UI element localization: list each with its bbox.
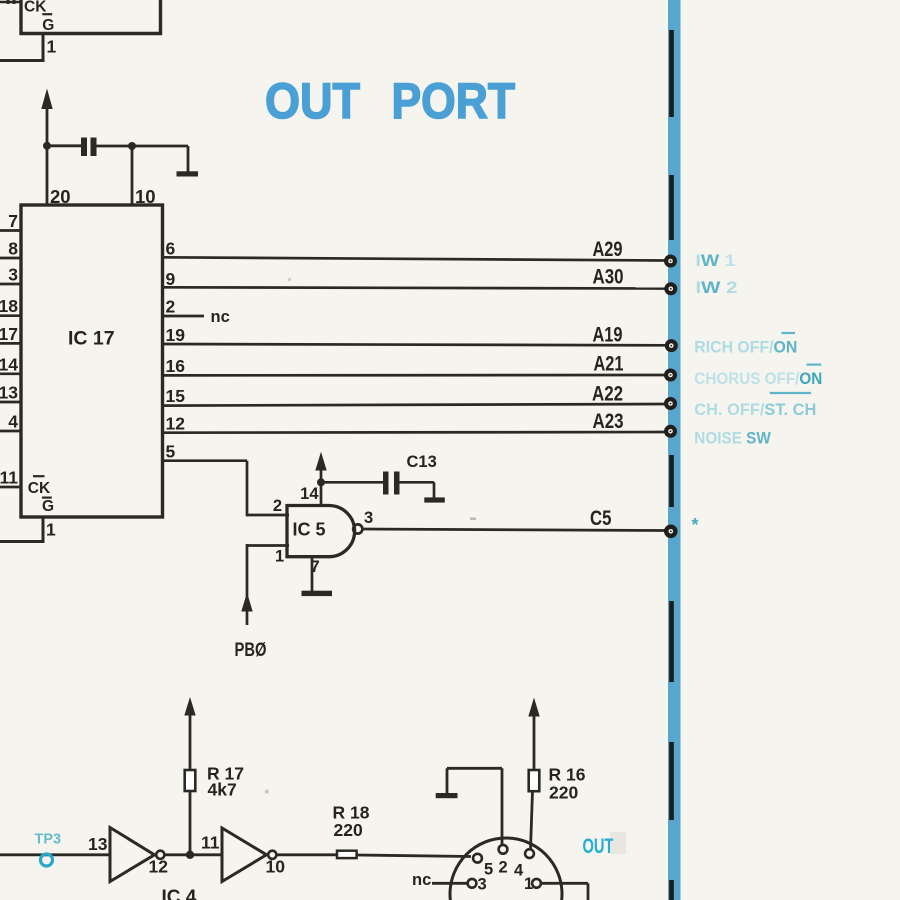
svg-text:NOISE SW: NOISE SW [694,429,771,448]
svg-text:*: * [692,515,699,535]
svg-text:15: 15 [166,386,186,406]
svg-text:13: 13 [88,834,108,854]
svg-text:1: 1 [46,520,56,540]
svg-text:RICH OFF/ON: RICH OFF/ON [694,338,797,357]
svg-text:9: 9 [166,269,176,289]
svg-text:16: 16 [166,356,186,376]
svg-text:5: 5 [166,442,176,462]
svg-text:IW 1: IW 1 [696,251,736,270]
svg-text:12: 12 [149,857,169,877]
svg-text:A30: A30 [593,266,624,289]
svg-text:A22: A22 [592,383,623,406]
svg-text:A19: A19 [593,324,623,347]
svg-text:11: 11 [201,833,220,853]
svg-text:A21: A21 [594,353,624,376]
svg-text:2: 2 [273,497,282,515]
svg-text:PBØ: PBØ [235,640,267,661]
svg-text:OUT: OUT [583,834,614,858]
svg-text:1: 1 [524,875,533,893]
svg-text:6: 6 [166,239,176,259]
svg-text:A29: A29 [593,238,623,261]
svg-text:3: 3 [364,509,373,527]
svg-text:2: 2 [499,859,508,877]
svg-text:220: 220 [549,783,578,803]
svg-text:13: 13 [0,383,18,403]
svg-text:10: 10 [266,857,286,877]
svg-text:17: 17 [0,324,18,344]
svg-text:3: 3 [478,876,487,894]
svg-text:4k7: 4k7 [208,780,237,800]
svg-text:8: 8 [8,239,18,259]
svg-text:C5: C5 [590,507,612,530]
svg-text:G: G [42,17,54,34]
svg-text:IC 4: IC 4 [162,887,197,900]
svg-text:220: 220 [334,820,363,840]
svg-text:IW 2: IW 2 [696,278,738,297]
svg-text:12: 12 [166,413,186,433]
svg-text:1: 1 [275,548,284,566]
svg-text:nc: nc [412,871,431,889]
svg-text:7: 7 [311,558,320,576]
svg-text:CK: CK [28,480,51,497]
svg-text:3: 3 [8,265,18,285]
svg-text:C13: C13 [407,453,437,471]
svg-text:4: 4 [514,862,524,880]
svg-text:nc: nc [211,308,230,326]
svg-text:R 16: R 16 [549,765,586,785]
svg-text:4: 4 [8,412,18,432]
svg-text:2: 2 [166,297,176,317]
svg-text:CH. OFF/ST. CH: CH. OFF/ST. CH [694,400,816,419]
svg-text:14: 14 [0,354,18,374]
svg-text:CHORUS OFF/ON: CHORUS OFF/ON [694,369,822,388]
svg-text:IC 17: IC 17 [68,328,115,350]
svg-text:TP3: TP3 [35,832,62,848]
svg-text:OUT: OUT [265,73,360,129]
svg-text:1: 1 [47,37,57,57]
svg-text:7: 7 [8,211,18,231]
svg-text:A23: A23 [593,410,624,433]
svg-text:18: 18 [0,296,18,316]
svg-text:PORT: PORT [392,73,516,129]
svg-text:IC 5: IC 5 [293,520,326,540]
svg-text:11: 11 [0,468,18,488]
svg-text:G: G [42,498,54,515]
svg-text:14: 14 [300,485,319,503]
svg-text:19: 19 [166,325,186,345]
